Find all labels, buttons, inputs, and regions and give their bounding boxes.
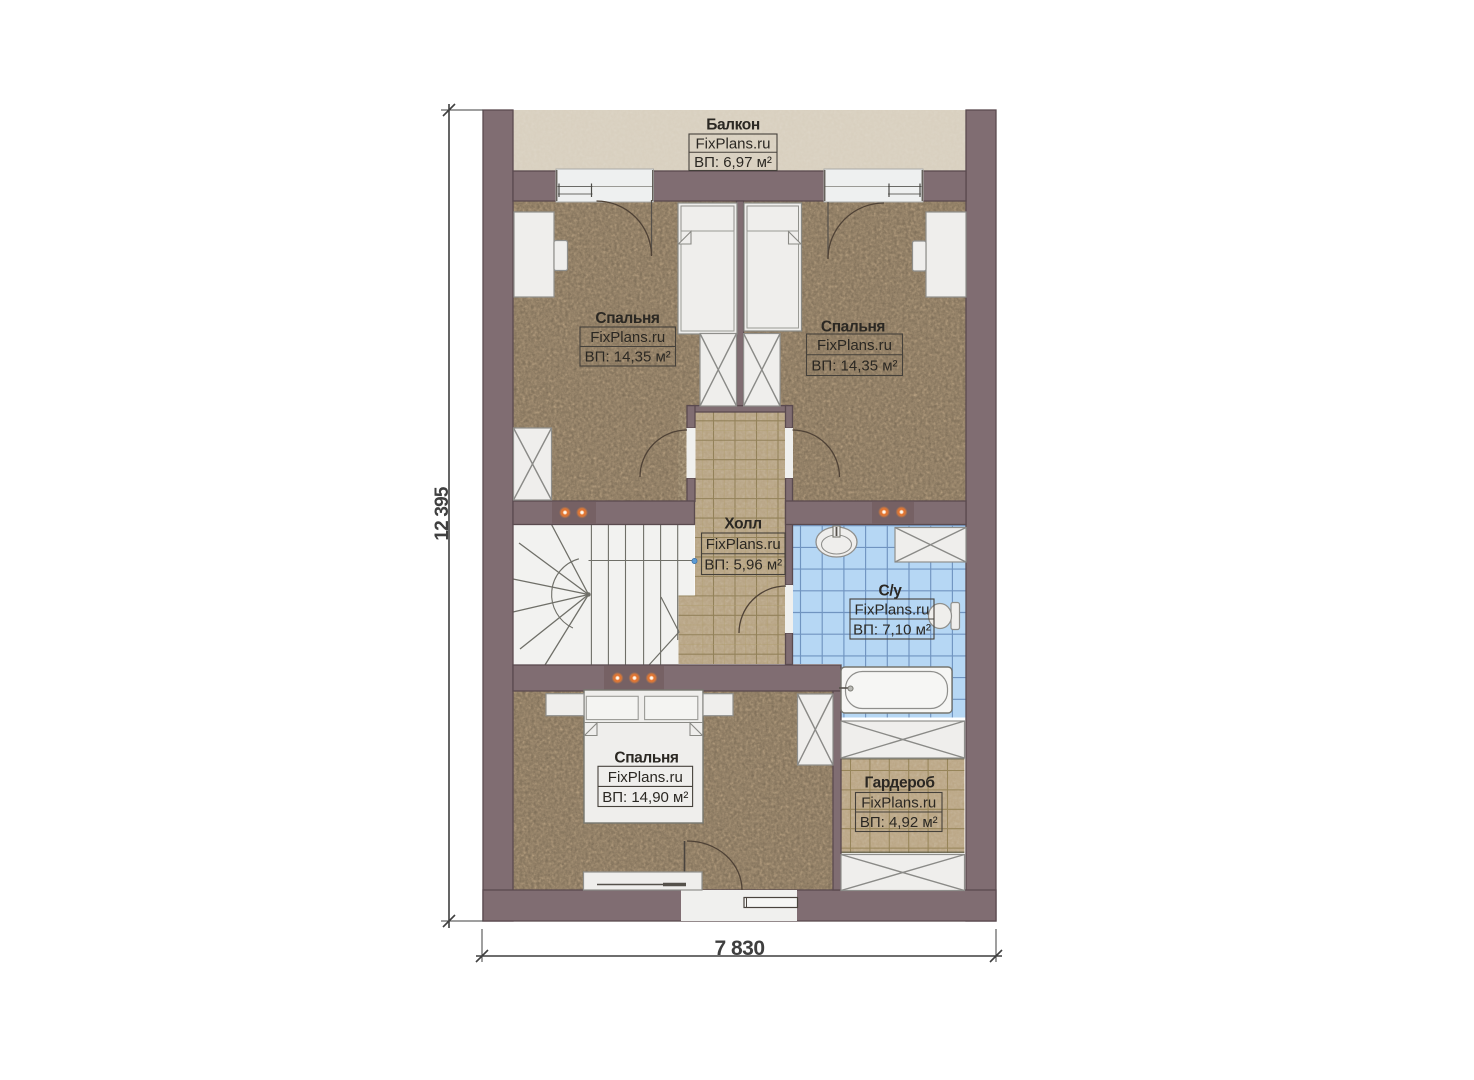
svg-text:Спальня: Спальня — [821, 319, 885, 336]
svg-text:ВП: 4,92 м²: ВП: 4,92 м² — [860, 814, 938, 831]
svg-text:ВП: 14,35 м²: ВП: 14,35 м² — [585, 349, 671, 366]
svg-text:FixPlans.ru: FixPlans.ru — [695, 136, 770, 153]
svg-text:Гардероб: Гардероб — [864, 775, 934, 792]
svg-text:12 395: 12 395 — [432, 486, 453, 541]
svg-text:FixPlans.ru: FixPlans.ru — [608, 769, 683, 786]
svg-text:7 830: 7 830 — [714, 937, 764, 960]
svg-text:ВП: 7,10 м²: ВП: 7,10 м² — [853, 621, 931, 638]
svg-text:С/у: С/у — [879, 583, 903, 600]
svg-text:ВП: 5,96 м²: ВП: 5,96 м² — [704, 557, 782, 574]
svg-text:Спальня: Спальня — [595, 310, 659, 327]
svg-text:Холл: Холл — [724, 516, 761, 533]
svg-text:Балкон: Балкон — [706, 117, 760, 134]
svg-text:FixPlans.ru: FixPlans.ru — [706, 536, 781, 553]
svg-text:Спальня: Спальня — [614, 750, 678, 767]
svg-text:ВП: 14,90 м²: ВП: 14,90 м² — [602, 789, 688, 806]
svg-text:FixPlans.ru: FixPlans.ru — [854, 601, 929, 618]
svg-text:FixPlans.ru: FixPlans.ru — [590, 329, 665, 346]
svg-text:ВП: 6,97 м²: ВП: 6,97 м² — [694, 154, 772, 171]
svg-text:FixPlans.ru: FixPlans.ru — [817, 337, 892, 354]
svg-text:ВП: 14,35 м²: ВП: 14,35 м² — [811, 358, 897, 375]
svg-text:FixPlans.ru: FixPlans.ru — [861, 795, 936, 812]
